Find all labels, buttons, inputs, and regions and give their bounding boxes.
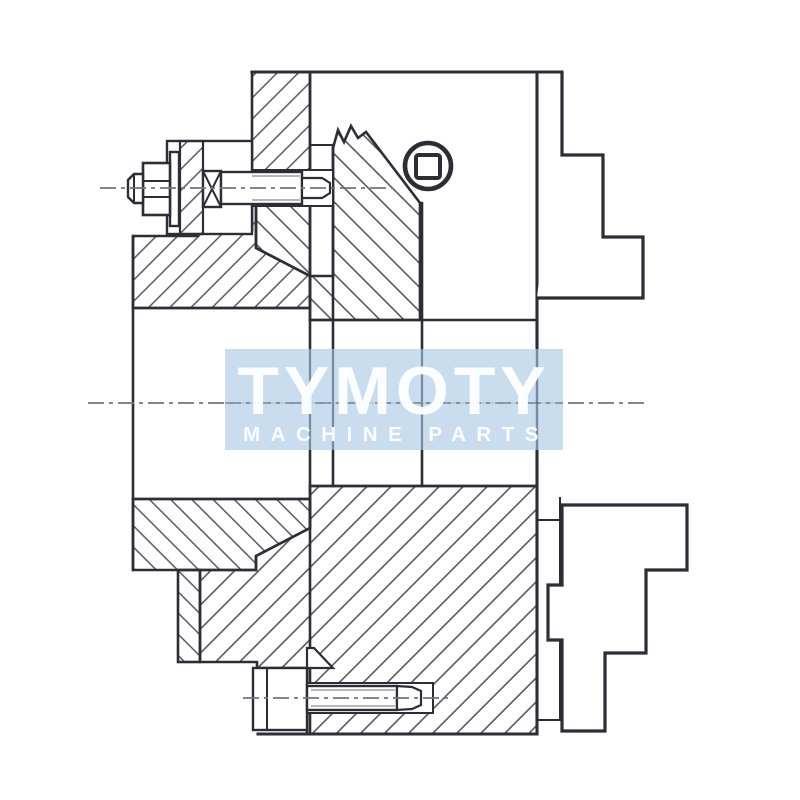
watermark-subtitle: MACHINE PARTS: [243, 423, 549, 446]
stud-square-end: [203, 171, 221, 207]
watermark: TYMOTY MACHINE PARTS: [225, 349, 563, 450]
screw-head: [253, 668, 307, 730]
technical-drawing: TYMOTY MACHINE PARTS: [0, 0, 800, 800]
hex-nut: [143, 163, 170, 215]
top-jaw: [537, 72, 643, 298]
watermark-title: TYMOTY: [237, 353, 550, 429]
bottom-jaw: [537, 498, 687, 731]
washer: [170, 152, 179, 226]
square-drive-socket-icon: [405, 143, 451, 189]
